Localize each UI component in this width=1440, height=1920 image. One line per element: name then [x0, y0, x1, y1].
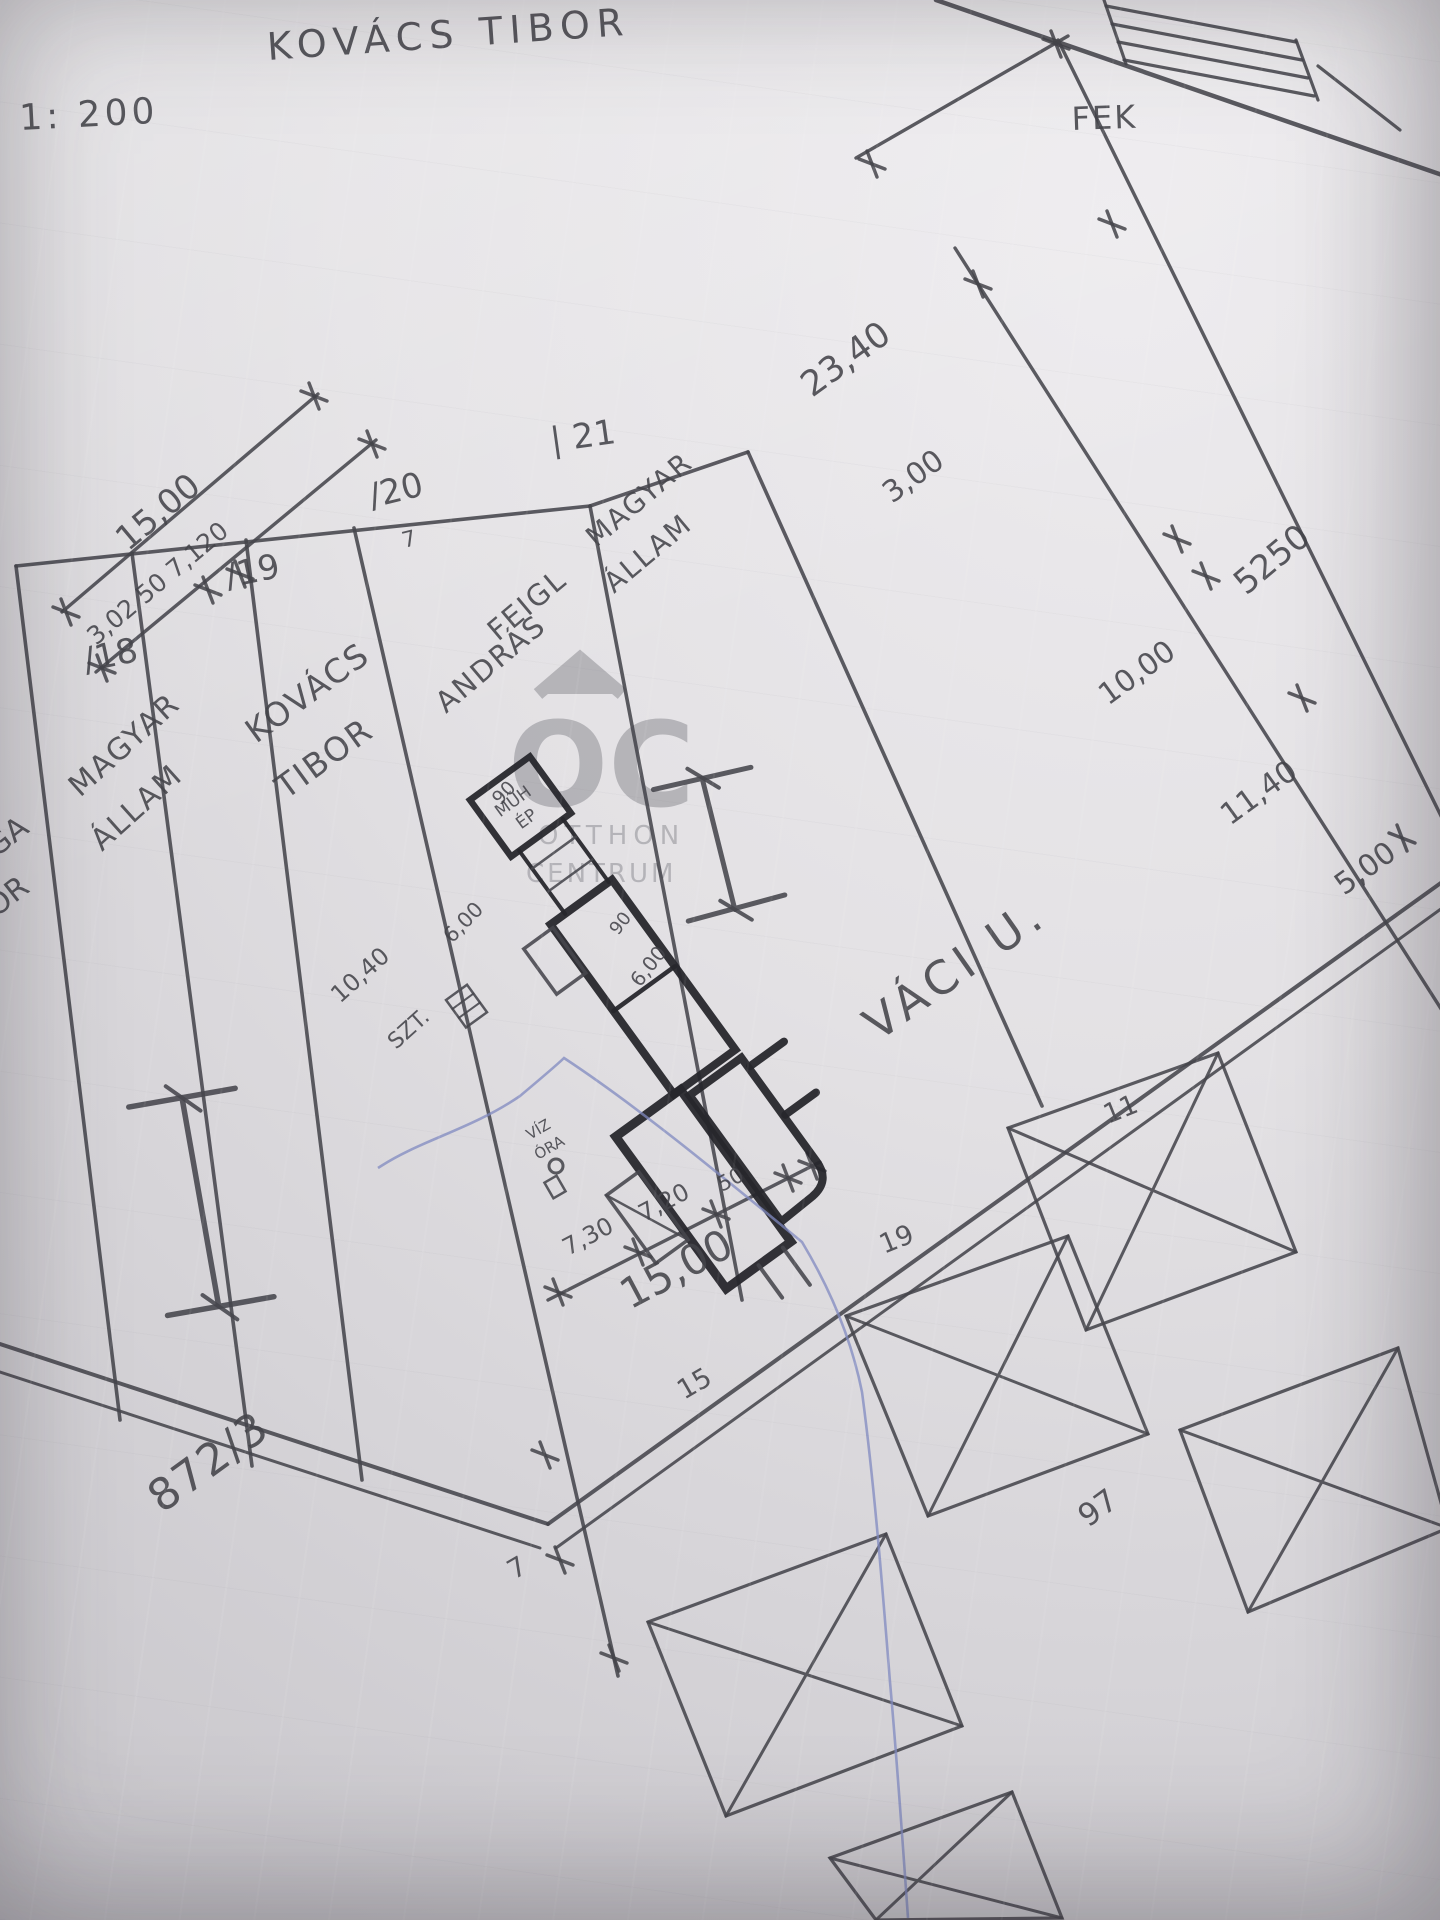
dim-6-00-left: 6,00 — [438, 897, 488, 947]
neighbor-number-15: 15 — [672, 1362, 717, 1406]
neighbor-building-97 — [1180, 1348, 1440, 1612]
dim-23-40: 23,40 — [794, 314, 899, 405]
scale-label: 1: 200 — [18, 91, 159, 139]
neighbor-number-7: 7 — [502, 1551, 532, 1586]
neighbor-building-bottom — [648, 1534, 962, 1816]
plot-symbol-left — [126, 1074, 276, 1331]
site-plan-photo: OC OTTHON CENTRUM — [0, 0, 1440, 1920]
edge-partial-text-bottom: OR — [0, 869, 36, 924]
water-meter-symbol — [544, 1159, 565, 1198]
dim-7-20: 7,20 — [634, 1177, 694, 1227]
neighbor-number-19: 19 — [875, 1219, 918, 1261]
dim-10-00: 10,00 — [1092, 634, 1182, 713]
otthon-centrum-watermark: OC OTTHON CENTRUM — [508, 658, 695, 889]
plot-number-19: /19 — [222, 546, 284, 597]
house-side-annex — [524, 928, 586, 994]
dim-11-40: 11,40 — [1214, 754, 1304, 833]
plot-number-20-sub: 7 — [399, 526, 419, 554]
neighbor-number-97: 97 — [1072, 1482, 1125, 1534]
dim-7-30: 7,30 — [558, 1211, 618, 1261]
neighbor-buildings — [648, 1053, 1440, 1920]
watermark-roof-icon — [538, 658, 622, 694]
site-plan-drawing: OC OTTHON CENTRUM — [0, 0, 1440, 1920]
plot-number-20: /20 — [365, 465, 428, 517]
corner-note: FEK — [1071, 98, 1138, 138]
edge-partial-text-top: GA — [0, 809, 36, 864]
stairs-label: SZT. — [383, 1005, 435, 1055]
dimension-lines — [62, 36, 1440, 1300]
plot-number-21: | 21 — [548, 412, 618, 461]
sheet-frame-line — [936, 0, 1440, 176]
dim-10-40: 10,40 — [325, 942, 395, 1009]
parcel-number-872-3: 872/3 — [138, 1401, 279, 1523]
blue-pen-line — [378, 1058, 908, 1918]
dim-outer-5250: 5250 — [1226, 517, 1318, 603]
watermark-line1: OTTHON — [538, 821, 685, 851]
dim-3-00: 3,00 — [876, 443, 951, 511]
neighbor-building-partial — [830, 1792, 1062, 1920]
sheet-title: KOVÁCS TIBOR — [266, 0, 632, 69]
